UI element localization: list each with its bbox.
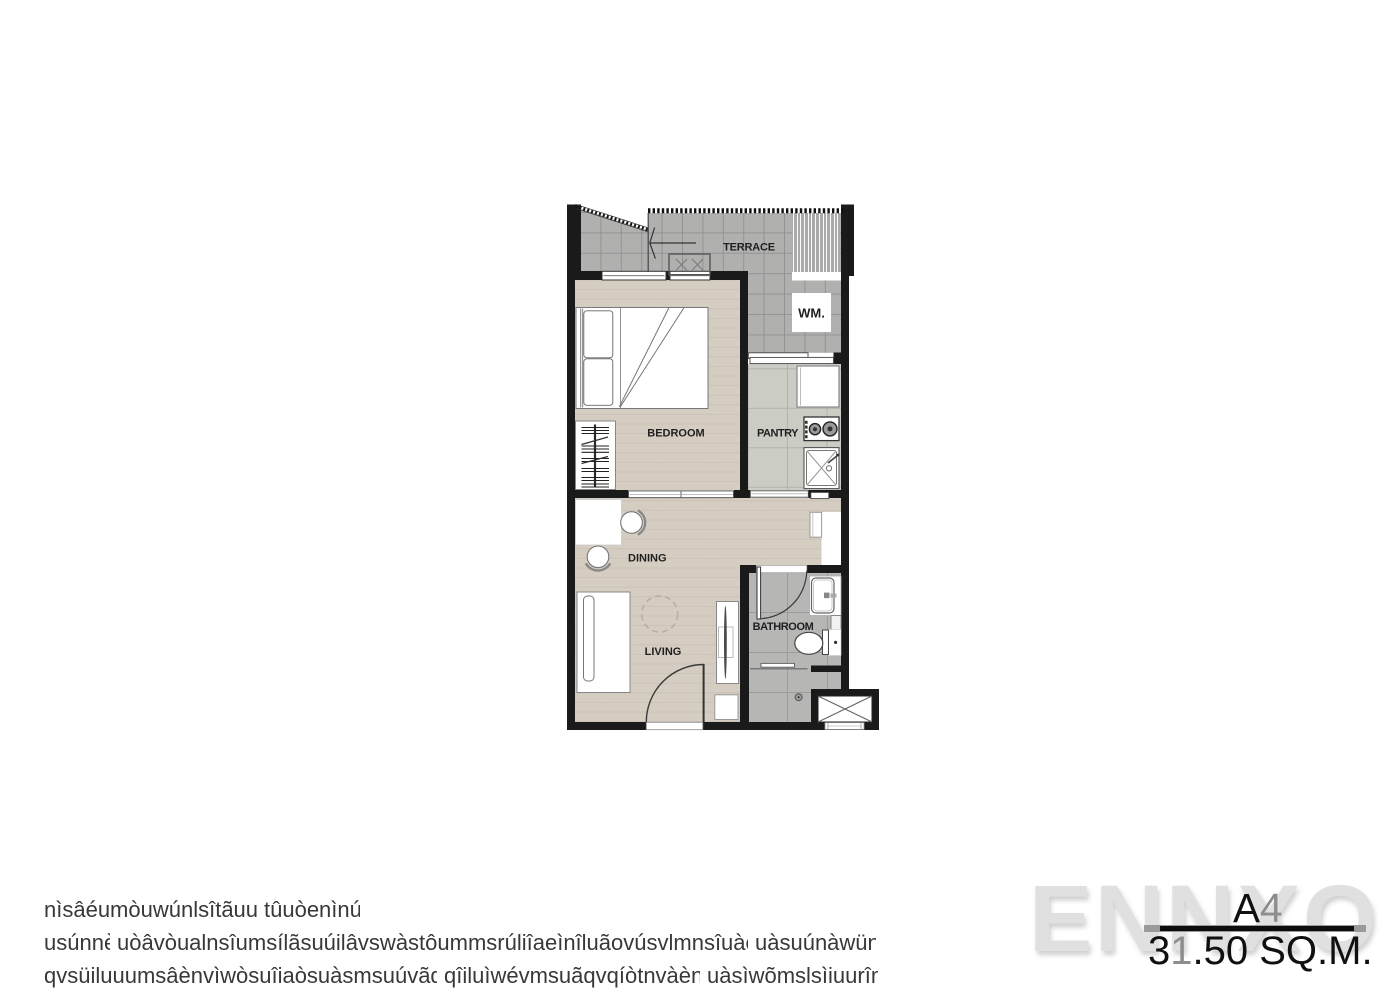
svg-text:BATHROOM: BATHROOM: [753, 621, 814, 633]
svg-text:LIVING: LIVING: [645, 646, 682, 658]
svg-text:WM.: WM.: [798, 306, 825, 321]
svg-text:TERRACE: TERRACE: [723, 242, 775, 254]
svg-text:PANTRY: PANTRY: [757, 428, 799, 440]
svg-text:DINING: DINING: [628, 553, 667, 565]
svg-text:BEDROOM: BEDROOM: [647, 428, 704, 440]
